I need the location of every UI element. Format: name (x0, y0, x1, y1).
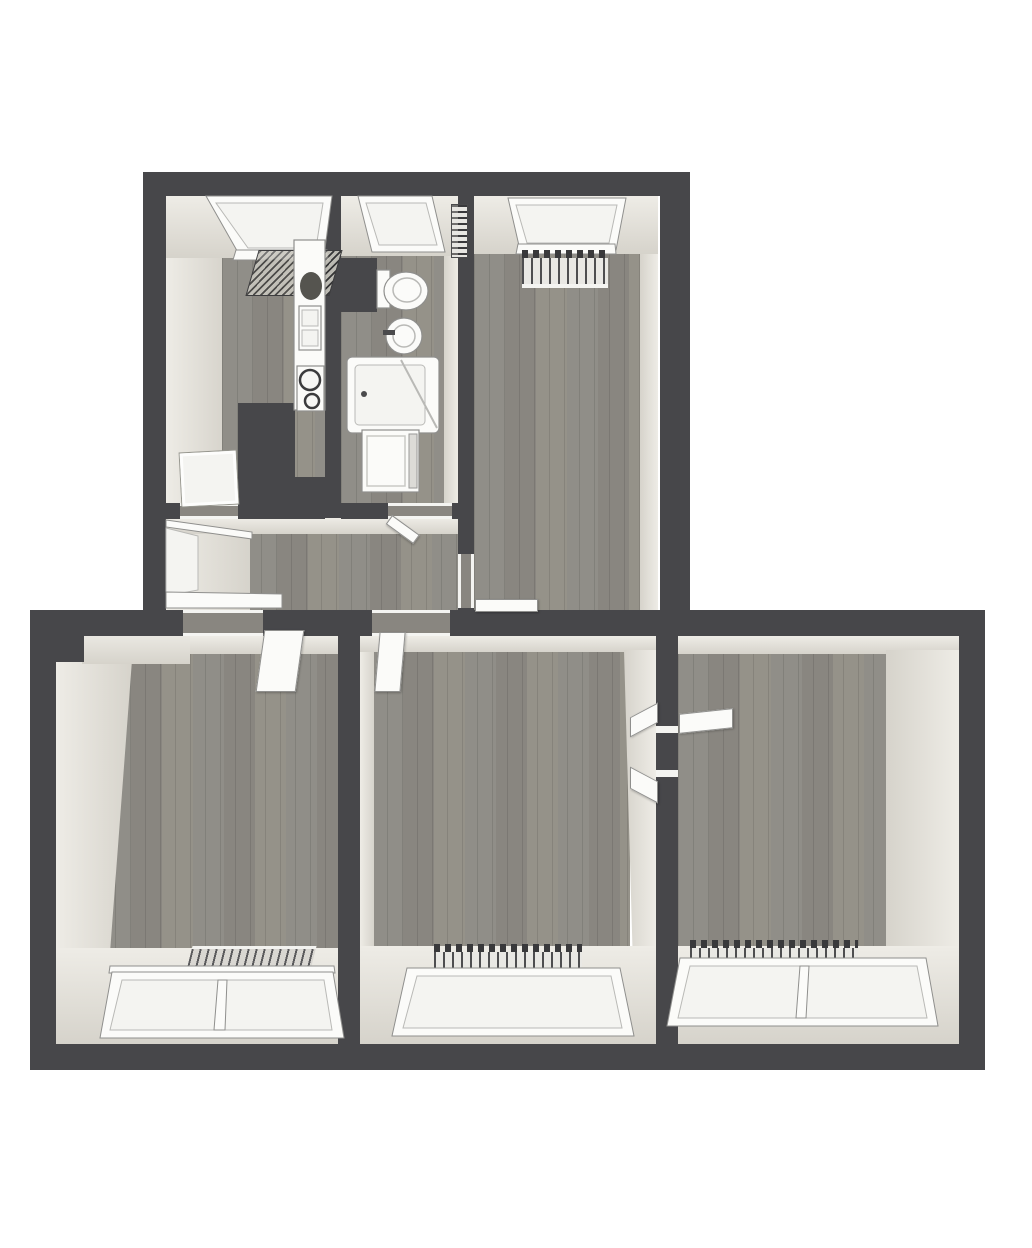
bathroom-door-opening (388, 503, 452, 519)
bathroom-window (350, 194, 450, 262)
outer-wall-top-left (143, 172, 166, 620)
bottom-left-room-door-opening (183, 610, 263, 636)
bottom-section-top-wall (30, 610, 985, 636)
floor-plan-scene (0, 0, 1032, 1248)
room-bottom-right-window (664, 952, 942, 1034)
kitchen-counter (293, 238, 327, 414)
room-bottom-middle-left-wall-face (360, 650, 374, 948)
middle-right-door-jamb-top (656, 726, 678, 733)
outer-wall-bottom (30, 1044, 985, 1070)
outer-wall-top-right (660, 172, 690, 620)
burner-small (305, 394, 319, 408)
bathroom-fixtures (341, 260, 458, 500)
middle-right-door-jamb-bottom (656, 770, 678, 777)
room-top-right-radiator (522, 250, 608, 288)
kitchen-glass-door-leaf (180, 451, 239, 507)
washing-machine-panel (409, 434, 417, 488)
basin-faucet (383, 330, 395, 335)
bathroom-towel-radiator (451, 204, 468, 258)
bottom-middle-room-door-leaf (374, 632, 405, 692)
outer-wall-top (143, 172, 690, 196)
room-bottom-left-floor (100, 650, 338, 952)
radiator-body (522, 258, 608, 288)
wall-notch-block (56, 610, 84, 662)
burner-large (300, 370, 320, 390)
hallway-window (164, 516, 288, 612)
topright-room-door-leaf (475, 599, 538, 612)
counter-sink (300, 272, 322, 300)
topright-room-door-opening (458, 554, 474, 608)
room-top-right-window (500, 194, 632, 258)
room-bottom-middle-floor (372, 650, 630, 950)
outer-wall-bottom-right (959, 610, 985, 1070)
room-bottom-middle-window (390, 962, 638, 1042)
room-bottom-right-floor (678, 650, 890, 952)
washbasin (386, 318, 422, 354)
room-top-right-right-wall-face (640, 254, 658, 620)
room-bottom-left-window (96, 966, 348, 1044)
room-top-right-floor (474, 254, 640, 620)
outer-wall-bottom-left (30, 610, 56, 1070)
bathtub-drain (361, 391, 367, 397)
